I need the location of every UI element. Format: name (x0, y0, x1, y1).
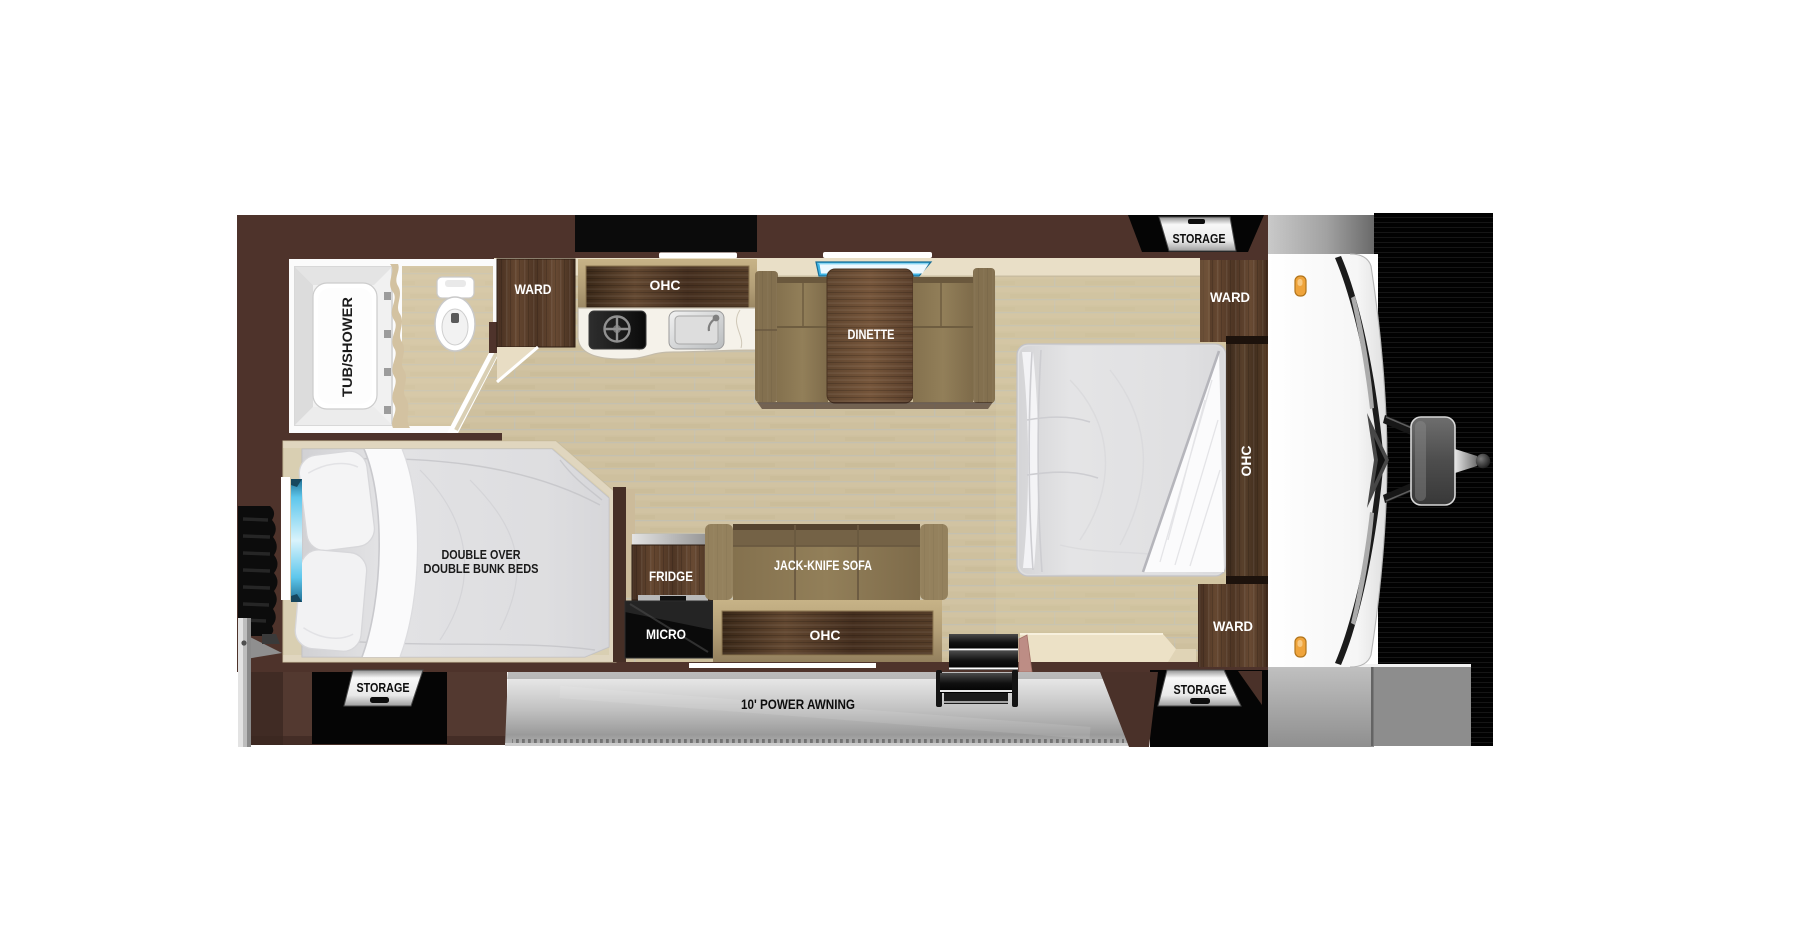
svg-text:10' POWER AWNING: 10' POWER AWNING (741, 696, 855, 712)
svg-text:TUB/SHOWER: TUB/SHOWER (339, 297, 355, 397)
svg-text:OHC: OHC (810, 627, 841, 643)
svg-text:WARD: WARD (1213, 618, 1253, 634)
svg-text:STORAGE: STORAGE (357, 681, 410, 695)
svg-text:MICRO: MICRO (646, 626, 686, 642)
svg-text:JACK-KNIFE SOFA: JACK-KNIFE SOFA (774, 557, 872, 573)
svg-text:DINETTE: DINETTE (848, 326, 895, 342)
svg-text:DOUBLE OVER: DOUBLE OVER (442, 547, 522, 562)
svg-text:DOUBLE BUNK BEDS: DOUBLE BUNK BEDS (424, 561, 539, 576)
svg-text:STORAGE: STORAGE (1173, 232, 1226, 246)
svg-text:STORAGE: STORAGE (1174, 683, 1227, 697)
svg-text:FRIDGE: FRIDGE (649, 568, 693, 584)
svg-text:WARD: WARD (515, 281, 552, 297)
svg-text:OHC: OHC (1238, 446, 1254, 477)
svg-text:OHC: OHC (650, 277, 681, 293)
svg-text:WARD: WARD (1210, 289, 1250, 305)
